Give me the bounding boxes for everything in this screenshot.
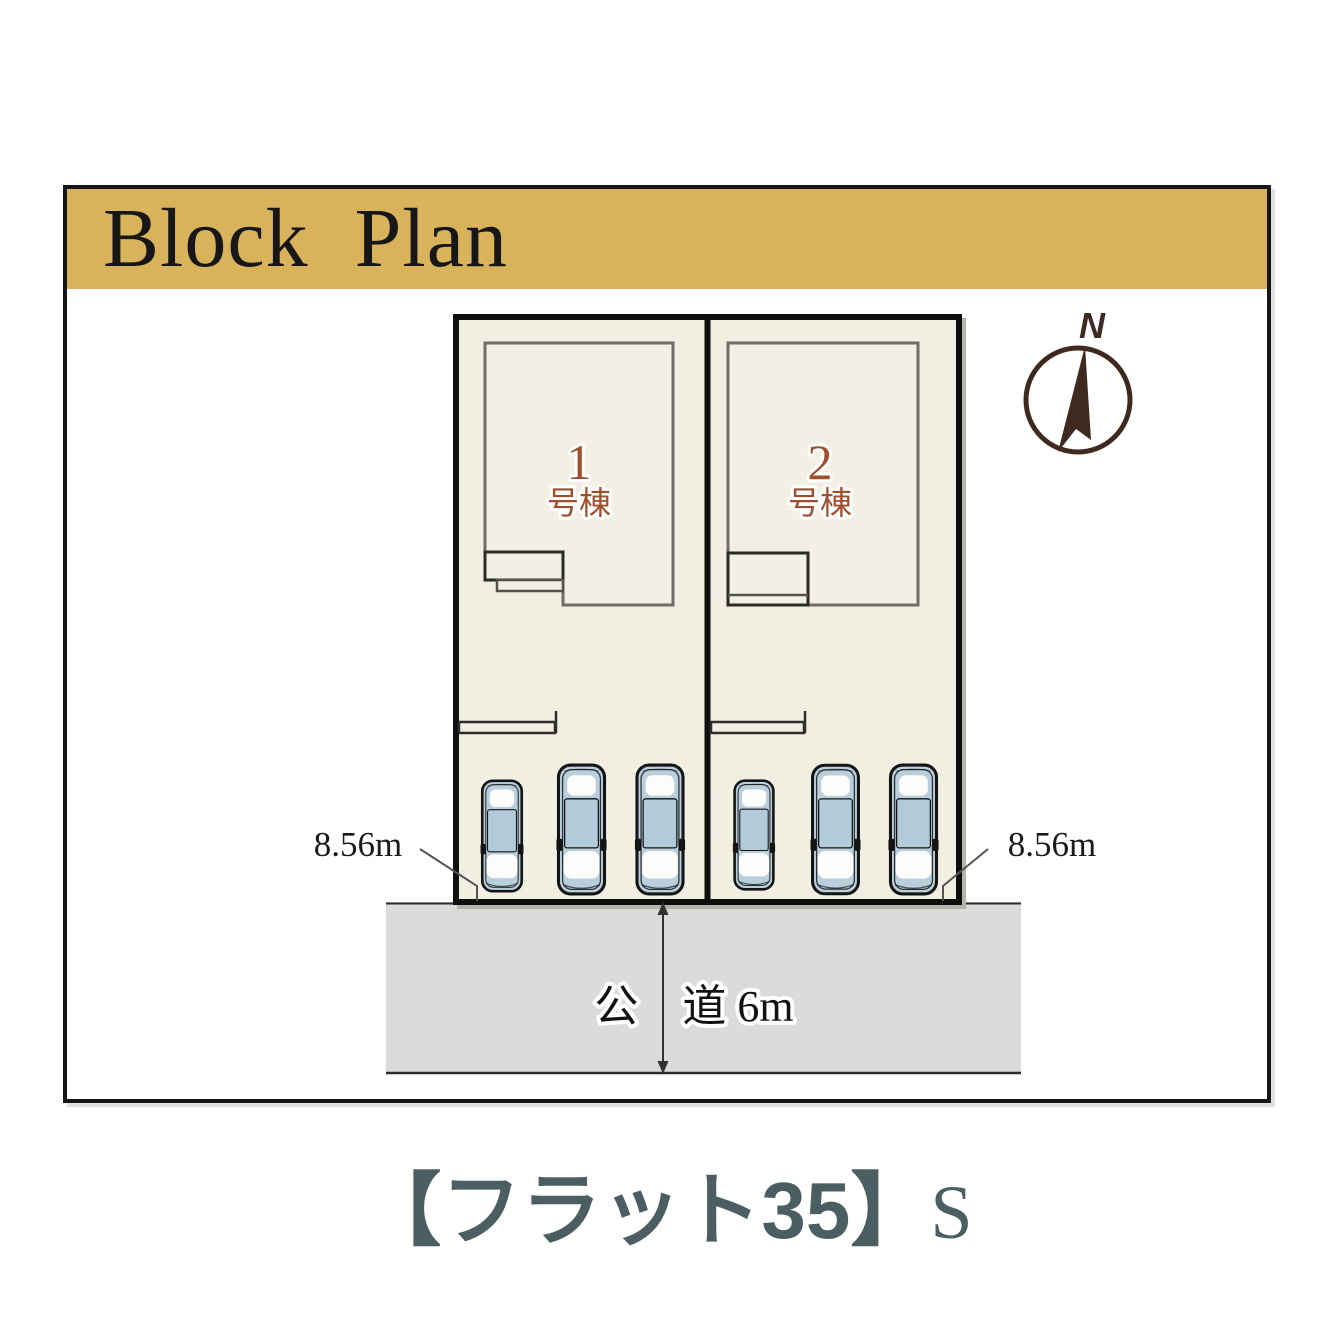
road-label: 公 道 6m: [594, 982, 793, 1031]
unit-1-number: 1: [567, 434, 592, 490]
unit-1-suffix: 号棟: [547, 485, 611, 521]
footer-logo-main: 【フラット35】: [361, 1166, 930, 1255]
building-1-step: [497, 580, 563, 591]
footer-logo: 【フラット35】S: [0, 1146, 1334, 1262]
compass-needle: [1058, 346, 1091, 452]
building-1-porch: [485, 552, 563, 580]
unit-2-number: 2: [808, 434, 833, 490]
compass: N: [1026, 305, 1130, 452]
car-4-icon: [733, 781, 775, 890]
car-1-icon: [481, 781, 524, 891]
compass-north-label: N: [1079, 305, 1106, 346]
dimension-right: 8.56m: [1008, 825, 1096, 864]
car-2-icon: [556, 765, 606, 894]
unit-2-suffix: 号棟: [788, 485, 852, 521]
dimension-left: 8.56m: [314, 825, 402, 864]
site-plan-svg: 1 号棟 2 号棟 8.56m 8.56m 公 道 6m: [0, 0, 1334, 1334]
car-5-icon: [811, 765, 861, 894]
block-plan-page: Block Plan: [0, 0, 1334, 1334]
footer-logo-suffix: S: [930, 1171, 972, 1255]
car-3-icon: [635, 765, 685, 894]
car-6-icon: [888, 765, 938, 894]
